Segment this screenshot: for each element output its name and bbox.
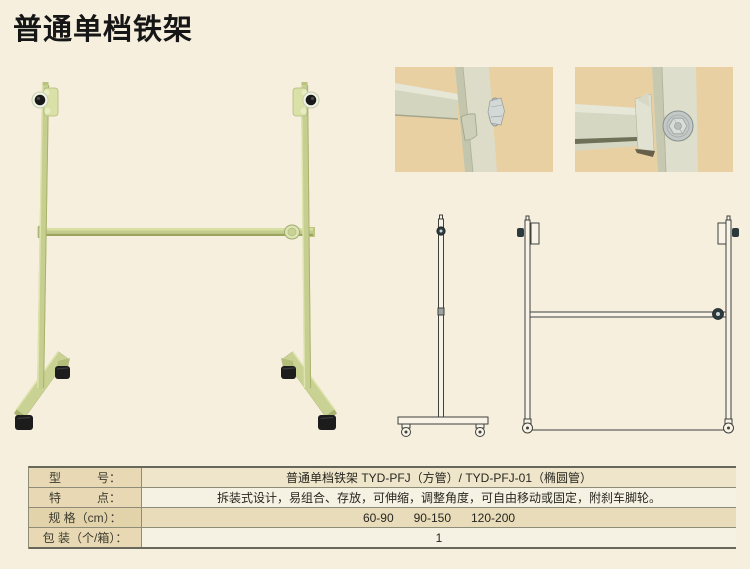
joint-closeup-2 bbox=[575, 67, 733, 172]
bracket-knob bbox=[732, 228, 739, 237]
spec-table: 型 号： 普通单档铁架 TYD-PFJ（方管）/ TYD-PFJ-01（椭圆管）… bbox=[28, 466, 736, 549]
right-top-bracket bbox=[293, 88, 319, 116]
product-photo-main bbox=[0, 55, 380, 455]
line-drawing-side-view bbox=[388, 206, 498, 440]
caster-wheel bbox=[318, 415, 336, 430]
knob-bolt bbox=[35, 95, 46, 106]
spec-row-model: 型 号： 普通单档铁架 TYD-PFJ（方管）/ TYD-PFJ-01（椭圆管） bbox=[29, 468, 736, 488]
spec-row-features: 特 点： 拆装式设计，易组合、存放，可伸缩，调整角度，可自由移动或固定，附刹车脚… bbox=[29, 488, 736, 508]
catalog-page: { "page": { "title": "普通单档铁架" }, "images… bbox=[0, 0, 750, 569]
spec-label: 特 点： bbox=[29, 488, 142, 507]
spec-value: 60-90 90-150 120-200 bbox=[142, 508, 736, 527]
spec-row-sizes: 规 格（cm）： 60-90 90-150 120-200 bbox=[29, 508, 736, 528]
spec-label: 包 装（个/箱）： bbox=[29, 528, 142, 547]
caster-wheel bbox=[15, 415, 33, 430]
detail-photo-joint-bolt bbox=[575, 67, 733, 172]
left-top-bracket bbox=[32, 88, 58, 116]
detail-photo-joint-square bbox=[395, 67, 553, 172]
crossbar bbox=[38, 226, 315, 238]
bracket-knob bbox=[517, 228, 524, 237]
spec-label: 型 号： bbox=[29, 468, 142, 487]
spec-value: 拆装式设计，易组合、存放，可伸缩，调整角度，可自由移动或固定，附刹车脚轮。 bbox=[142, 488, 736, 507]
right-post bbox=[301, 82, 311, 389]
crossbar-knob bbox=[285, 225, 300, 239]
spec-value: 普通单档铁架 TYD-PFJ（方管）/ TYD-PFJ-01（椭圆管） bbox=[142, 468, 736, 487]
spec-row-packing: 包 装（个/箱）： 1 bbox=[29, 528, 736, 549]
joint-closeup-1 bbox=[395, 67, 553, 172]
line-drawing-front-view bbox=[502, 206, 742, 440]
knob-bolt bbox=[306, 95, 317, 106]
spec-value: 1 bbox=[142, 528, 736, 547]
spec-label: 规 格（cm）： bbox=[29, 508, 142, 527]
page-title: 普通单档铁架 bbox=[13, 6, 193, 48]
